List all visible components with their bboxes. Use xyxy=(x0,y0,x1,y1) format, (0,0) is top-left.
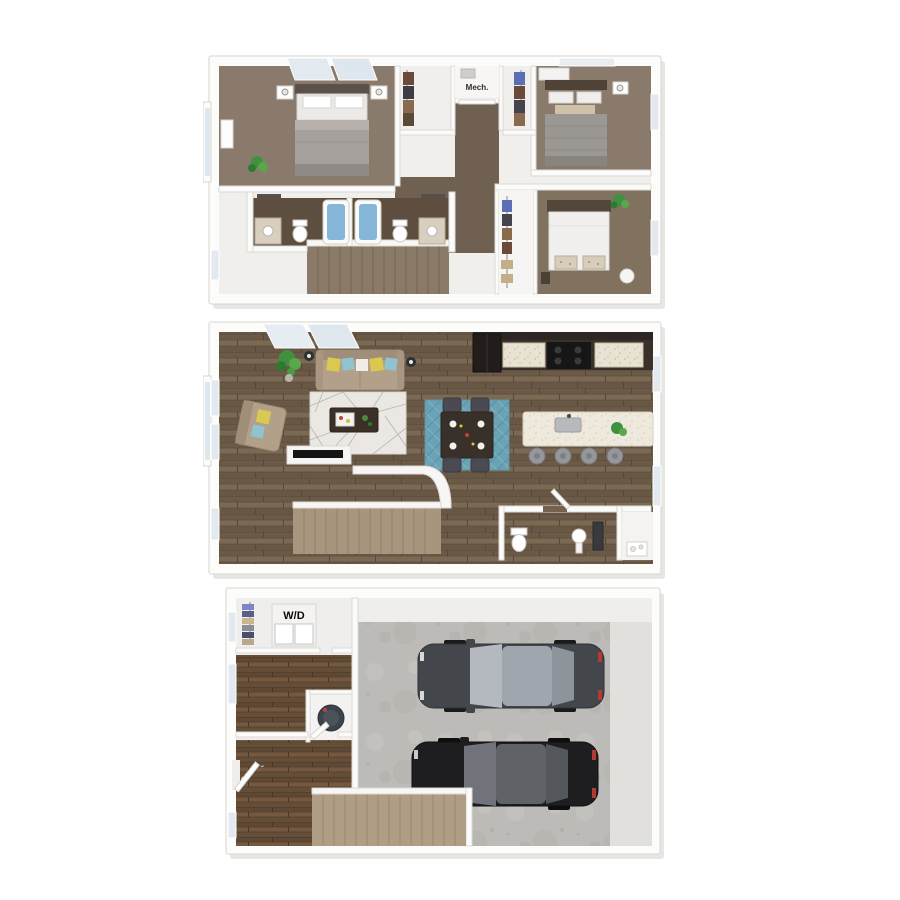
dining-chair xyxy=(443,398,461,412)
headlight xyxy=(420,691,424,700)
tail-light xyxy=(598,652,602,662)
desk xyxy=(539,68,569,80)
side-mirror xyxy=(460,737,469,743)
speaker xyxy=(541,272,550,284)
side-mirror xyxy=(466,639,475,645)
powder-closet xyxy=(622,512,653,560)
hallway-carpet xyxy=(455,98,499,253)
lamp xyxy=(617,85,623,91)
stove xyxy=(547,342,591,369)
pillow-yellow xyxy=(256,409,271,424)
dining-area xyxy=(425,398,509,472)
lamp xyxy=(376,89,382,95)
mirror xyxy=(593,522,603,550)
side-mirror xyxy=(466,707,475,713)
sink xyxy=(427,226,437,236)
mirror xyxy=(421,194,445,198)
counter xyxy=(595,343,643,367)
bed-1 xyxy=(295,84,369,176)
bathtub-water xyxy=(327,204,345,240)
washer-dryer: W/D xyxy=(272,604,316,646)
garage-side-strip xyxy=(610,622,652,846)
laundry-closet: W/D xyxy=(242,602,316,646)
island-sink xyxy=(555,418,581,432)
mech-label: Mech. xyxy=(466,83,489,92)
pillow-teal xyxy=(384,357,397,370)
pillow-yellow xyxy=(369,357,384,372)
mech-door xyxy=(459,100,495,104)
mirror xyxy=(257,194,281,198)
dining-chair xyxy=(471,458,489,472)
tail-light xyxy=(592,750,596,760)
tv-console xyxy=(287,446,351,464)
pedestal-sink xyxy=(572,529,586,543)
kitchen xyxy=(473,332,653,372)
pillow-white xyxy=(356,359,368,371)
faucet xyxy=(567,414,571,418)
dining-chair xyxy=(443,458,461,472)
sink xyxy=(263,226,273,236)
wd-label: W/D xyxy=(283,610,304,622)
pillow-teal xyxy=(251,424,265,438)
pillow-teal xyxy=(341,357,354,370)
closet-2 xyxy=(514,70,525,126)
tv xyxy=(293,450,343,458)
floor-plan-main xyxy=(203,316,671,580)
lamp xyxy=(282,89,288,95)
headlight xyxy=(420,652,424,661)
bed-3 xyxy=(547,200,611,270)
armchair xyxy=(235,400,287,452)
bathtub-water xyxy=(359,204,377,240)
stairs-main xyxy=(293,502,441,554)
dresser xyxy=(221,120,233,148)
toilet xyxy=(293,226,307,242)
floor-plan-upper: Mech. xyxy=(203,50,671,312)
headlight xyxy=(414,750,418,759)
sofa xyxy=(316,350,404,390)
tail-light xyxy=(598,690,602,700)
side-table xyxy=(620,269,634,283)
car-1 xyxy=(418,639,604,713)
stairs-garage-level xyxy=(312,788,466,846)
furnace xyxy=(461,69,475,78)
closet-3 xyxy=(499,190,533,294)
toilet xyxy=(512,535,526,552)
dining-chair xyxy=(471,398,489,412)
walk-in-closet xyxy=(403,70,414,126)
coffee-table xyxy=(330,408,378,432)
toilet xyxy=(393,226,407,242)
stairs-upper xyxy=(307,240,449,294)
floorplan-image: Mech. xyxy=(0,0,900,900)
floor-plan-garage: W/D xyxy=(220,582,668,862)
counter xyxy=(503,343,545,367)
pillow-yellow xyxy=(326,357,341,372)
tail-light xyxy=(592,788,596,798)
